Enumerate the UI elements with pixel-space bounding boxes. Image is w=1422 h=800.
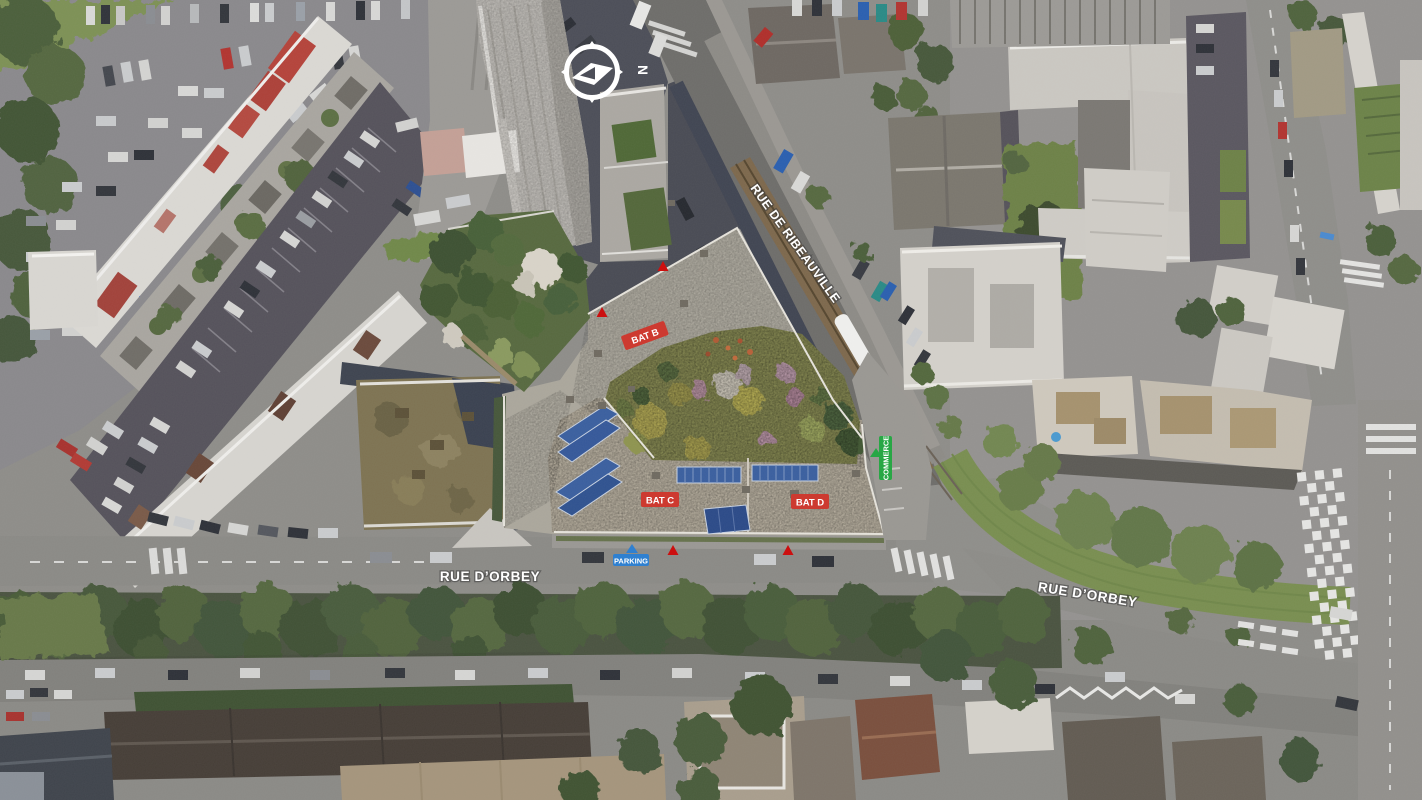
svg-text:PARKING: PARKING — [614, 557, 648, 566]
svg-text:BAT C: BAT C — [646, 496, 674, 507]
svg-text:BAT D: BAT D — [796, 498, 824, 509]
svg-text:RUE D’ORBEY: RUE D’ORBEY — [440, 569, 540, 584]
svg-text:COMMERCE: COMMERCE — [882, 436, 891, 481]
svg-text:N: N — [635, 65, 650, 75]
